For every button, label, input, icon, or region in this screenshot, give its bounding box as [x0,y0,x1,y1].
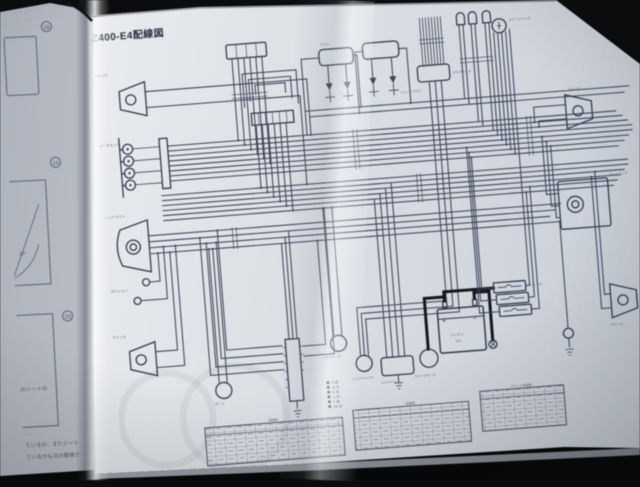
left-figure-box-3: のシートの [11,314,59,428]
rear-brake-switch [555,221,575,355]
svg-text:12V: 12V [456,339,463,343]
circled-number: 19 [52,161,58,167]
battery-minus-mark: − [473,315,478,322]
text-line: ているかも次の要領で [26,450,80,461]
svg-text:ウインカ: ウインカ [112,334,126,340]
circled-number-badge: 19 [50,157,61,168]
indicator-lamp-cluster [119,134,172,198]
connection-table: 結線表 [352,396,471,450]
position-lamps [130,247,168,305]
circled-number-badge: 18 [41,21,52,32]
svg-text:ホーン: ホーン [215,400,226,406]
figure-caption: のシートの [20,385,47,393]
main-key-switch: メインスイッチ [491,15,551,286]
rear-right-turn-signal: ウインカ [532,85,593,131]
svg-text:結線表: 結線表 [268,417,278,423]
svg-text:イグナイタ: イグナイタ [381,379,397,385]
svg-text:ウインカ: ウインカ [611,321,624,327]
svg-text:結線表: 結線表 [406,400,416,406]
svg-text:スパークプラグ: スパークプラグ [400,88,422,95]
text-fragment: ······· [25,431,36,437]
junction-dots [147,88,600,255]
battery: + − バッテリ 12V [424,288,499,354]
wire-bus-upper [168,110,634,181]
front-left-turn-signal [122,246,186,378]
svg-text:バッテリ: バッテリ [450,331,464,337]
left-figure-box-1 [4,36,39,96]
rear-left-turn-signal: ウインカ [591,169,639,327]
text-fragment: ········· [17,8,31,14]
text-line: ているか、またシート [25,439,79,449]
headlight [115,220,152,274]
text-fragment: ········ [21,17,34,23]
svg-text:ポジション: ポジション [111,288,129,294]
starter-motor: スタータモータ [412,349,439,379]
circled-number: 20 [64,314,70,320]
left-figure-angle-diagram: 30° [4,180,51,286]
circled-number-badge: 20 [62,311,73,322]
text-fragment: ········· [17,26,31,32]
svg-text:ウインカ: ウインカ [568,86,581,92]
svg-text:メインスイッチ: メインスイッチ [508,15,530,22]
svg-text:テールランプ: テールランプ [609,170,629,177]
book-gutter-shadow [76,0,110,480]
open-book: ········· ········ ········· ······· 18 … [0,0,640,480]
svg-text:ヒューズ: ヒューズ [529,281,542,287]
photo-of-open-manual: ········· ········ ········· ······· 18 … [0,0,640,480]
angle-label: 30° [19,251,27,257]
svg-text:スタータモータ: スタータモータ [414,372,436,379]
circled-number: 18 [43,25,49,31]
connection-table: スイッチ結線表 [479,379,566,431]
battery-plus-mark: + [442,318,447,325]
svg-text:オルタネータ: オルタネータ [452,68,471,74]
igniter-unit: イグナイタ [365,182,415,390]
handlebar-switch-connector [226,42,275,166]
